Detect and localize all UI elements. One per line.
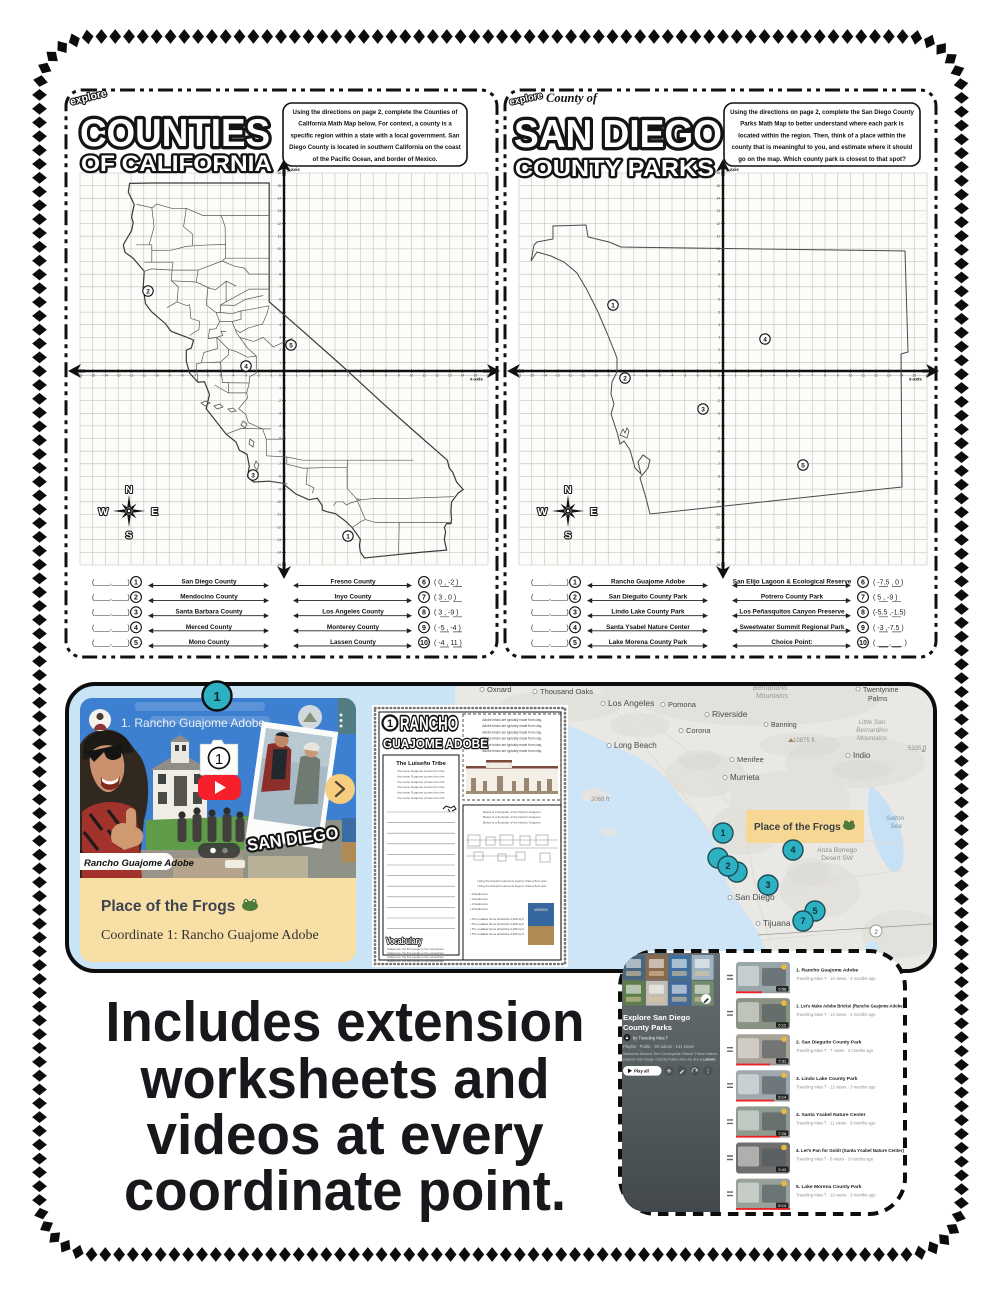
svg-text:16: 16 <box>925 374 929 378</box>
svg-text:14: 14 <box>277 196 281 200</box>
svg-text:Using the directions on page 2: Using the directions on page 2, complete… <box>293 109 459 116</box>
svg-text:N: N <box>125 485 133 496</box>
svg-text:7:31: 7:31 <box>778 1059 787 1064</box>
svg-text:4: 4 <box>763 336 767 343</box>
svg-text:Mountains: Mountains <box>857 735 888 742</box>
svg-text:-13: -13 <box>555 374 560 378</box>
svg-text:county that is meaningful to y: county that is meaningful to you, and es… <box>732 144 913 151</box>
svg-text:-3: -3 <box>244 374 247 378</box>
svg-text:Oxnard: Oxnard <box>487 685 512 694</box>
svg-text:Below is a floorplan of the hi: Below is a floorplan of the historic Gua… <box>483 820 541 824</box>
svg-text:4. Santa Ysabel Nature Center: 4. Santa Ysabel Nature Center <box>796 1112 866 1118</box>
svg-text:2: 2 <box>134 595 138 602</box>
svg-text:2: 2 <box>874 929 878 936</box>
svg-text:2: 2 <box>279 348 281 352</box>
svg-text:11: 11 <box>423 374 427 378</box>
svg-text:• 3 bedrooms: • 3 bedrooms <box>470 892 488 896</box>
svg-text:Long Beach: Long Beach <box>614 741 657 750</box>
svg-text:8: 8 <box>422 610 426 617</box>
svg-text:Includes extension: Includes extension <box>106 990 585 1054</box>
svg-text:-16: -16 <box>78 374 83 378</box>
svg-text:8: 8 <box>718 272 720 276</box>
svg-text:Indigenous: the first people t: Indigenous: the first people to live som… <box>387 959 444 963</box>
svg-text:Traveling Miss T · 12 views ·: Traveling Miss T · 12 views · 3 months a… <box>796 1084 876 1089</box>
svg-text:Los Angeles County: Los Angeles County <box>322 609 384 616</box>
svg-text:(____,____): (____,____) <box>531 640 569 647</box>
svg-text:COUNTY PARKS: COUNTY PARKS <box>515 155 714 181</box>
svg-text:Playlist · Public · 28 videos: Playlist · Public · 28 videos · 131 view… <box>623 1044 694 1049</box>
svg-text:4: 4 <box>279 323 281 327</box>
svg-text:8: 8 <box>279 272 281 276</box>
svg-text:• The smallest home should be: • The smallest home should be 2,400 sq f… <box>470 932 524 936</box>
svg-text:3: 3 <box>760 374 762 378</box>
svg-text:5: 5 <box>718 310 720 314</box>
svg-text:-5: -5 <box>658 374 661 378</box>
svg-text:15: 15 <box>277 184 281 188</box>
svg-text:Thousand Oaks: Thousand Oaks <box>540 687 593 696</box>
svg-text:8: 8 <box>861 610 865 617</box>
svg-text:12: 12 <box>874 374 878 378</box>
svg-text:10: 10 <box>716 247 720 251</box>
svg-text:-6: -6 <box>645 374 648 378</box>
svg-text:-15: -15 <box>90 374 95 378</box>
svg-text:(____,____): (____,____) <box>92 610 130 617</box>
svg-text:W: W <box>98 507 108 518</box>
svg-text:go on the map. Which county pa: go on the map. Which county park is clos… <box>738 156 906 163</box>
svg-text:Little San: Little San <box>858 719 885 726</box>
svg-text:1: 1 <box>720 828 725 838</box>
svg-text:-11: -11 <box>142 374 147 378</box>
svg-text:6: 6 <box>799 374 801 378</box>
svg-text:3: 3 <box>765 880 770 890</box>
svg-text:12: 12 <box>435 374 439 378</box>
svg-text:coordinate point.: coordinate point. <box>124 1159 566 1223</box>
svg-text:10: 10 <box>849 374 853 378</box>
svg-text:12: 12 <box>716 222 720 226</box>
svg-text:-4: -4 <box>717 424 720 428</box>
svg-text:7: 7 <box>279 285 281 289</box>
svg-text:1. Let's Make Adobe Bricks! (R: 1. Let's Make Adobe Bricks! (Rancho Guaj… <box>796 1004 904 1010</box>
svg-text:7: 7 <box>800 916 805 926</box>
svg-text:-10: -10 <box>154 374 159 378</box>
svg-text:Place of the Frogs: Place of the Frogs <box>754 822 841 833</box>
svg-text:Play all: Play all <box>634 1069 649 1074</box>
svg-text:-6: -6 <box>717 449 720 453</box>
svg-text:Riverside: Riverside <box>712 709 748 719</box>
svg-text:13: 13 <box>448 374 452 378</box>
svg-text:Traveling Miss T · 10 views ·: Traveling Miss T · 10 views · 3 months a… <box>796 976 876 981</box>
svg-text:(____,____): (____,____) <box>531 580 569 587</box>
svg-text:the name Guajome comes from th: the name Guajome comes from the <box>397 796 444 800</box>
svg-text:Mendocino County: Mendocino County <box>180 594 238 601</box>
svg-text:-9: -9 <box>607 374 610 378</box>
svg-text:7: 7 <box>811 374 813 378</box>
svg-text:Sea: Sea <box>890 823 902 830</box>
svg-text:3: 3 <box>573 610 577 617</box>
svg-text:videos at every: videos at every <box>147 1103 544 1167</box>
svg-text:-7: -7 <box>278 462 281 466</box>
svg-text:Murrieta: Murrieta <box>730 773 760 782</box>
svg-text:E: E <box>151 507 158 518</box>
svg-text:the name Guajome comes from th: the name Guajome comes from the <box>397 785 444 789</box>
svg-text:( 0 , -2 ): ( 0 , -2 ) <box>434 580 459 587</box>
svg-text:8: 8 <box>824 374 826 378</box>
svg-text:...more: ...more <box>703 1058 715 1062</box>
svg-text:-8: -8 <box>181 374 184 378</box>
svg-text:Adobe bricks are typically mad: Adobe bricks are typically made from cla… <box>482 749 542 753</box>
svg-text:-13: -13 <box>715 538 720 542</box>
svg-text:Below is a floorplan of the hi: Below is a floorplan of the historic Gua… <box>483 810 541 814</box>
svg-text:4: 4 <box>573 625 577 632</box>
svg-text:10: 10 <box>277 247 281 251</box>
svg-text:15: 15 <box>716 184 720 188</box>
svg-text:Place of the Frogs: Place of the Frogs <box>101 898 235 915</box>
svg-text:y-axis: y-axis <box>726 167 739 172</box>
svg-text:• The smallest home should be: • The smallest home should be 2,400 sq f… <box>470 917 524 921</box>
svg-text:Rancho Guajome Adobe: Rancho Guajome Adobe <box>611 579 685 586</box>
svg-text:1: 1 <box>134 580 138 587</box>
svg-text:1: 1 <box>611 302 615 309</box>
svg-text:-16: -16 <box>517 374 522 378</box>
svg-text:San Diego County: San Diego County <box>181 579 236 586</box>
svg-text:14: 14 <box>461 374 465 378</box>
svg-text:(____,____): (____,____) <box>531 595 569 602</box>
svg-text:-15: -15 <box>529 374 534 378</box>
svg-text:( -7.5 , 0 ): ( -7.5 , 0 ) <box>873 580 903 587</box>
svg-text:(____,____): (____,____) <box>92 625 130 632</box>
svg-text:explore San Diego County Parks: explore San Diego County Parks who we ar… <box>623 1058 708 1062</box>
svg-text:13: 13 <box>277 209 281 213</box>
svg-text:1: 1 <box>296 374 298 378</box>
svg-text:( ___,___ ): ( ___,___ ) <box>873 640 907 647</box>
svg-text:-6: -6 <box>278 449 281 453</box>
svg-text:10: 10 <box>859 640 867 647</box>
svg-text:Coordinate 1: Rancho Guajome A: Coordinate 1: Rancho Guajome Adobe <box>101 928 319 943</box>
svg-text:-12: -12 <box>129 374 134 378</box>
svg-text:-11: -11 <box>716 513 721 517</box>
svg-text:-10: -10 <box>715 500 720 504</box>
svg-text:-14: -14 <box>542 374 547 378</box>
svg-text:(____,____): (____,____) <box>92 640 130 647</box>
svg-text:( -3 ,-7.5 ): ( -3 ,-7.5 ) <box>873 625 904 632</box>
svg-text:Using the blueprint elements l: Using the blueprint elements legend, dra… <box>477 884 546 888</box>
svg-text:Vocabulary: Vocabulary <box>386 936 422 946</box>
svg-text:(____,____): (____,____) <box>531 610 569 617</box>
svg-text:Lake Morena County Park: Lake Morena County Park <box>609 639 688 646</box>
svg-text:Welcome Aboard, the Countrysid: Welcome Aboard, the Countryside Friend! … <box>623 1052 717 1056</box>
svg-text:3: 3 <box>251 472 255 479</box>
svg-text:6: 6 <box>279 298 281 302</box>
svg-text:9: 9 <box>718 260 720 264</box>
svg-text:0: 0 <box>718 374 720 378</box>
svg-text:(____,____): (____,____) <box>531 625 569 632</box>
svg-text:Menifee: Menifee <box>737 755 764 764</box>
svg-text:the name Guajome comes from th: the name Guajome comes from the <box>397 769 444 773</box>
svg-text:California Math Map below. For: California Math Map below. For context, … <box>298 121 452 128</box>
svg-text:Adobe bricks are typically mad: Adobe bricks are typically made from cla… <box>482 737 542 741</box>
svg-text:-3: -3 <box>683 374 686 378</box>
svg-text:Lassen County: Lassen County <box>330 639 376 646</box>
svg-text:W: W <box>537 507 547 518</box>
svg-text:Adobe bricks are typically mad: Adobe bricks are typically made from cla… <box>482 730 542 734</box>
svg-text:-15: -15 <box>715 563 720 567</box>
svg-text:-4: -4 <box>278 424 281 428</box>
svg-text:2: 2 <box>573 595 577 602</box>
svg-text:Mono County: Mono County <box>189 639 230 646</box>
svg-text:Using the directions on page 2: Using the directions on page 2, complete… <box>730 109 914 116</box>
svg-text:( 3 , -9 ): ( 3 , -9 ) <box>434 610 459 617</box>
svg-text:Below is a floorplan of the hi: Below is a floorplan of the historic Gua… <box>483 815 541 819</box>
svg-text:9:58: 9:58 <box>778 986 787 991</box>
svg-text:3: 3 <box>134 610 138 617</box>
svg-text:• The smallest home should be: • The smallest home should be 2,400 sq f… <box>470 922 524 926</box>
svg-text:16: 16 <box>716 171 720 175</box>
svg-text:Adobe bricks are typically mad: Adobe bricks are typically made from cla… <box>482 718 542 722</box>
svg-text:Santa Barbara County: Santa Barbara County <box>175 609 243 616</box>
svg-text:San Elijo Lagoon & Ecological: San Elijo Lagoon & Ecological Reserve <box>733 579 852 586</box>
svg-text:1: 1 <box>735 374 737 378</box>
svg-text:6: 6 <box>718 298 720 302</box>
svg-text:Explore San Diego: Explore San Diego <box>623 1013 690 1022</box>
svg-text:1. Rancho Guajome Adobe: 1. Rancho Guajome Adobe <box>121 716 265 730</box>
svg-text:9: 9 <box>279 260 281 264</box>
svg-text:-7: -7 <box>717 462 720 466</box>
svg-text:-1: -1 <box>717 386 720 390</box>
svg-text:2: 2 <box>623 375 627 382</box>
svg-text:-3: -3 <box>278 411 281 415</box>
svg-text:Bernardino: Bernardino <box>753 685 787 692</box>
svg-text:Palms: Palms <box>868 696 888 703</box>
svg-text:-9: -9 <box>717 487 720 491</box>
svg-text:16: 16 <box>277 171 281 175</box>
svg-text:11: 11 <box>862 374 866 378</box>
svg-text:13: 13 <box>887 374 891 378</box>
svg-text:-11: -11 <box>581 374 586 378</box>
svg-text:The Luiseño Tribe: The Luiseño Tribe <box>396 761 446 767</box>
svg-text:3: 3 <box>701 406 705 413</box>
svg-text:5: 5 <box>289 342 293 349</box>
svg-text:Sweetwater Summit Regional Par: Sweetwater Summit Regional Park <box>740 624 845 631</box>
svg-text:-14: -14 <box>103 374 108 378</box>
svg-text:-7: -7 <box>632 374 635 378</box>
svg-text:Santa Ysabel Nature Center: Santa Ysabel Nature Center <box>606 624 690 631</box>
svg-text:1: 1 <box>573 580 577 587</box>
svg-text:-12: -12 <box>276 525 281 529</box>
svg-text:Merced County: Merced County <box>186 624 233 631</box>
svg-text:x-axis: x-axis <box>470 377 483 382</box>
svg-text:1: 1 <box>346 533 350 540</box>
svg-text:S: S <box>126 531 133 542</box>
svg-text:7: 7 <box>718 285 720 289</box>
svg-text:-10: -10 <box>276 500 281 504</box>
svg-text:6: 6 <box>861 580 865 587</box>
svg-text:located within the region. The: located within the region. Then, think o… <box>738 132 906 139</box>
svg-text:7:26: 7:26 <box>778 1131 787 1136</box>
svg-text:-4: -4 <box>671 374 674 378</box>
svg-text:-9: -9 <box>168 374 171 378</box>
svg-text:2: 2 <box>146 288 150 295</box>
svg-text:Monterey County: Monterey County <box>327 624 380 631</box>
svg-text:Traveling Miss T · 7 views · 3: Traveling Miss T · 7 views · 3 months ag… <box>796 1048 874 1053</box>
svg-text:-14: -14 <box>715 551 720 555</box>
svg-text:9: 9 <box>861 625 865 632</box>
svg-text:specific region within a state: specific region within a state with a lo… <box>291 132 460 139</box>
svg-text:9: 9 <box>398 374 400 378</box>
svg-text:4: 4 <box>134 625 138 632</box>
svg-text:(-5.5 ,-1.5): (-5.5 ,-1.5) <box>873 610 906 617</box>
svg-text:( 3 , 0 ): ( 3 , 0 ) <box>434 595 456 602</box>
svg-text:3. Lindo Lake County Park: 3. Lindo Lake County Park <box>796 1076 858 1082</box>
svg-text:y-axis: y-axis <box>287 167 300 172</box>
svg-text:COUNTIES: COUNTIES <box>80 112 270 155</box>
svg-text:Traveling Miss T · 10 views ·: Traveling Miss T · 10 views · 3 months a… <box>796 1193 876 1198</box>
svg-text:1: 1 <box>213 689 220 704</box>
svg-text:Parks Math Map to better under: Parks Math Map to better understand wher… <box>740 121 904 128</box>
svg-text:5: 5 <box>786 374 788 378</box>
svg-text:-2: -2 <box>717 399 720 403</box>
svg-text:-4: -4 <box>232 374 235 378</box>
svg-text:Lindo Lake County Park: Lindo Lake County Park <box>611 609 685 616</box>
svg-text:9: 9 <box>837 374 839 378</box>
svg-text:x-axis: x-axis <box>909 377 922 382</box>
svg-text:Choice Point:: Choice Point: <box>771 639 812 646</box>
svg-text:-2: -2 <box>278 399 281 403</box>
svg-text:San Dieguito County Park: San Dieguito County Park <box>609 594 688 601</box>
svg-text:( 5 , -9 ): ( 5 , -9 ) <box>873 595 898 602</box>
svg-text:5: 5 <box>347 374 349 378</box>
svg-text:3: 3 <box>321 374 323 378</box>
svg-text:Banning: Banning <box>771 722 797 729</box>
svg-text:12: 12 <box>277 222 281 226</box>
svg-text:County Parks: County Parks <box>623 1023 672 1032</box>
svg-text:OF CALIFORNIA: OF CALIFORNIA <box>81 151 272 176</box>
svg-text:-15: -15 <box>276 563 281 567</box>
svg-text:-1: -1 <box>709 374 712 378</box>
svg-text:County of: County of <box>546 91 599 105</box>
svg-text:-10: -10 <box>593 374 598 378</box>
svg-text:Pomona: Pomona <box>668 700 697 709</box>
svg-text:-13: -13 <box>116 374 121 378</box>
svg-text:0: 0 <box>279 374 281 378</box>
svg-text:the name Guajome comes from th: the name Guajome comes from the <box>397 791 444 795</box>
svg-text:7: 7 <box>861 595 865 602</box>
svg-text:6:12: 6:12 <box>778 1023 787 1028</box>
svg-text:• 3 bedrooms: • 3 bedrooms <box>470 907 488 911</box>
svg-text:14: 14 <box>716 196 720 200</box>
svg-text:4: 4 <box>790 845 795 855</box>
svg-text:Anza Borrego: Anza Borrego <box>817 847 857 854</box>
svg-text:-11: -11 <box>277 513 282 517</box>
svg-text:2: 2 <box>748 374 750 378</box>
svg-text:-6: -6 <box>206 374 209 378</box>
svg-text:1: 1 <box>718 361 720 365</box>
svg-text:(____,____): (____,____) <box>92 595 130 602</box>
svg-text:7: 7 <box>372 374 374 378</box>
svg-text:• The smallest home should be: • The smallest home should be 2,400 sq f… <box>470 927 524 931</box>
svg-text:SAN DIEGO: SAN DIEGO <box>514 113 722 156</box>
svg-text:3: 3 <box>279 336 281 340</box>
svg-text:MISSION: MISSION <box>534 908 548 912</box>
svg-text:-5: -5 <box>717 437 720 441</box>
svg-text:5:43: 5:43 <box>778 1167 787 1172</box>
svg-text:the name Guajome comes from th: the name Guajome comes from the <box>397 780 444 784</box>
svg-text:8:14: 8:14 <box>778 1203 787 1208</box>
svg-text:by Traveling Miss T: by Traveling Miss T <box>633 1036 669 1041</box>
svg-text:Tijuana: Tijuana <box>763 918 791 928</box>
svg-text:13: 13 <box>716 209 720 213</box>
svg-text:GUAJOME ADOBE: GUAJOME ADOBE <box>383 736 488 751</box>
svg-text:-12: -12 <box>715 525 720 529</box>
svg-text:11: 11 <box>278 234 282 238</box>
svg-text:6: 6 <box>360 374 362 378</box>
svg-text:Potrero County Park: Potrero County Park <box>761 594 824 601</box>
svg-text:5: 5 <box>134 640 138 647</box>
svg-text:RANCHO: RANCHO <box>400 714 458 735</box>
svg-text:Desert SW: Desert SW <box>821 855 853 862</box>
svg-text:( -5 , -4 ): ( -5 , -4 ) <box>434 625 461 632</box>
svg-text:S: S <box>565 531 572 542</box>
svg-text:2: 2 <box>725 861 730 871</box>
svg-text:11: 11 <box>717 234 721 238</box>
svg-text:4: 4 <box>718 323 720 327</box>
svg-text:Fresno County: Fresno County <box>330 579 376 586</box>
svg-text:of the Pacific Ocean, and bord: of the Pacific Ocean, and border of Mexi… <box>313 156 438 163</box>
svg-text:4. Let's Pan for Gold! (Santa: 4. Let's Pan for Gold! (Santa Ysabel Nat… <box>796 1148 904 1154</box>
svg-text:Corona: Corona <box>686 726 711 735</box>
svg-text:Twentynine: Twentynine <box>863 687 899 694</box>
svg-text:10: 10 <box>420 640 428 647</box>
svg-text:Los Angeles: Los Angeles <box>608 698 654 708</box>
svg-text:5: 5 <box>812 906 817 916</box>
svg-text:Mountains: Mountains <box>756 693 789 700</box>
svg-text:2: 2 <box>718 348 720 352</box>
svg-text:9: 9 <box>422 625 426 632</box>
svg-text:-1: -1 <box>270 374 273 378</box>
svg-text:2: 2 <box>309 374 311 378</box>
svg-text:worksheets and: worksheets and <box>140 1047 550 1111</box>
svg-text:Traveling Miss T · 8 views · 3: Traveling Miss T · 8 views · 3 months ag… <box>796 1157 874 1162</box>
svg-text:E: E <box>590 507 597 518</box>
svg-text:Rancho Guajome Adobe: Rancho Guajome Adobe <box>84 858 195 869</box>
svg-text:5: 5 <box>801 462 805 469</box>
svg-text:-13: -13 <box>276 538 281 542</box>
svg-text:1: 1 <box>279 361 281 365</box>
svg-text:4: 4 <box>334 374 336 378</box>
svg-text:(____,____): (____,____) <box>92 580 130 587</box>
svg-text:1: 1 <box>215 751 223 768</box>
svg-text:10875 ft: 10875 ft <box>793 738 815 744</box>
svg-text:-2: -2 <box>696 374 699 378</box>
svg-text:4: 4 <box>244 363 248 370</box>
svg-text:Salton: Salton <box>886 815 905 822</box>
svg-text:3: 3 <box>718 336 720 340</box>
svg-text:2. San Dieguito County Park: 2. San Dieguito County Park <box>796 1040 862 1046</box>
svg-text:-14: -14 <box>276 551 281 555</box>
svg-text:Using the blueprint elements l: Using the blueprint elements legend, dra… <box>477 879 546 883</box>
svg-text:the name Guajome comes from th: the name Guajome comes from the <box>397 774 444 778</box>
svg-text:-8: -8 <box>717 475 720 479</box>
svg-text:Indio: Indio <box>853 751 871 760</box>
svg-text:• 3 bedrooms: • 3 bedrooms <box>470 902 488 906</box>
svg-text:8: 8 <box>385 374 387 378</box>
svg-text:-2: -2 <box>257 374 260 378</box>
svg-text:Inyo County: Inyo County <box>335 594 372 601</box>
svg-text:10: 10 <box>410 374 414 378</box>
svg-text:16: 16 <box>486 374 490 378</box>
svg-text:4: 4 <box>773 374 775 378</box>
svg-text:Diego County is located in sou: Diego County is located in southern Cali… <box>289 144 461 151</box>
svg-text:-5: -5 <box>278 437 281 441</box>
